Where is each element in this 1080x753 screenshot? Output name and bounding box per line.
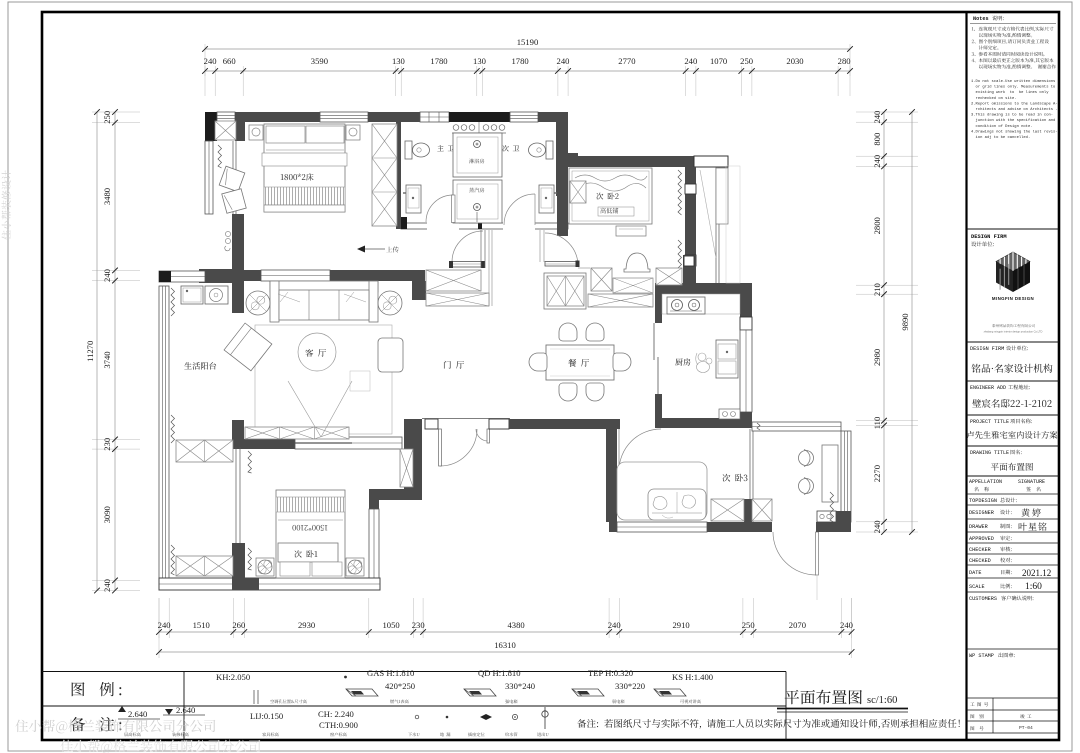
svg-text:TEP H:0.320: TEP H:0.320	[588, 668, 633, 678]
svg-text:sc/1:60: sc/1:60	[867, 695, 897, 706]
svg-text:1:60: 1:60	[1025, 582, 1042, 592]
svg-text:PROJECT TITLE: PROJECT TITLE	[970, 419, 1009, 425]
svg-text:or grid lines only. Measuremen: or grid lines only. Measurements to	[971, 85, 1056, 90]
svg-text:APPROVED: APPROVED	[969, 536, 994, 542]
svg-text:DATE: DATE	[969, 570, 981, 576]
svg-text:SIGNATURE: SIGNATURE	[1018, 479, 1045, 485]
svg-text:rechecked on site.: rechecked on site.	[971, 96, 1017, 101]
svg-text:240: 240	[872, 111, 882, 124]
svg-text:KS H:1.400: KS H:1.400	[672, 672, 713, 682]
svg-text:2030: 2030	[786, 56, 803, 66]
svg-text:230: 230	[102, 438, 112, 451]
svg-text:210: 210	[872, 283, 882, 296]
svg-text:110: 110	[872, 417, 882, 430]
svg-text:11270: 11270	[85, 341, 95, 362]
svg-text:junction with the specificatio: junction with the specification and	[971, 118, 1055, 123]
svg-text:PT-04: PT-04	[1019, 725, 1033, 731]
svg-text:800: 800	[872, 133, 882, 146]
svg-text:420*250: 420*250	[385, 681, 415, 691]
svg-text:250: 250	[742, 620, 755, 630]
svg-text:zhejiang mingpin interior desi: zhejiang mingpin interior design product…	[984, 330, 1043, 334]
svg-text:230: 230	[412, 620, 425, 630]
svg-text:240: 240	[557, 56, 570, 66]
svg-text:1.Do not scale.Use written dim: 1.Do not scale.Use written dimensions	[971, 79, 1055, 84]
svg-text:2021.12: 2021.12	[1022, 568, 1051, 578]
svg-text:250: 250	[740, 56, 753, 66]
svg-text:GAS H:1.810: GAS H:1.810	[367, 668, 414, 678]
svg-text:9890: 9890	[900, 313, 910, 330]
svg-text:240: 240	[608, 620, 621, 630]
svg-text:condition of Design note.: condition of Design note.	[971, 124, 1033, 129]
svg-text:DESIGN FIRM: DESIGN FIRM	[971, 234, 1007, 240]
svg-text:240: 240	[102, 269, 112, 282]
svg-text:CTH:0.900: CTH:0.900	[319, 720, 358, 730]
svg-text:QD H:1.810: QD H:1.810	[478, 668, 521, 678]
svg-text:1070: 1070	[710, 56, 727, 66]
svg-text:CUSTOMERS: CUSTOMERS	[969, 596, 997, 602]
svg-text:240: 240	[872, 155, 882, 168]
svg-text:CHECKED: CHECKED	[969, 558, 991, 564]
svg-text:ENGINEER ADD: ENGINEER ADD	[970, 385, 1006, 391]
svg-text:2800: 2800	[872, 217, 882, 234]
svg-text:240: 240	[158, 620, 171, 630]
svg-text:15190: 15190	[517, 37, 538, 47]
svg-text:3090: 3090	[102, 506, 112, 523]
svg-text:2070: 2070	[789, 620, 806, 630]
svg-text:3590: 3590	[311, 56, 328, 66]
svg-text:260: 260	[232, 620, 245, 630]
svg-text:16310: 16310	[494, 640, 515, 650]
svg-text:130: 130	[473, 56, 486, 66]
svg-text:2.640: 2.640	[176, 705, 195, 715]
svg-text:TOPDESIGN: TOPDESIGN	[969, 498, 997, 504]
svg-text:APPELLATION: APPELLATION	[969, 479, 1002, 485]
svg-text:240: 240	[102, 579, 112, 592]
svg-text:330*240: 330*240	[505, 681, 535, 691]
svg-text:LIJ:0.150: LIJ:0.150	[250, 711, 283, 721]
svg-text:1780: 1780	[512, 56, 529, 66]
svg-text:4380: 4380	[508, 620, 525, 630]
svg-text:660: 660	[223, 56, 236, 66]
svg-text:1780: 1780	[430, 56, 447, 66]
svg-text:ion adj to be cancelled.: ion adj to be cancelled.	[971, 135, 1030, 140]
svg-text:DESIGN FIRM: DESIGN FIRM	[970, 346, 1004, 352]
svg-text:DESIGNER: DESIGNER	[969, 510, 994, 516]
svg-text:2270: 2270	[872, 465, 882, 482]
svg-text:280: 280	[838, 56, 851, 66]
svg-text:rchitects and advise on Archit: rchitects and advise on Architects .	[971, 107, 1058, 112]
svg-text:MINGFIN DESIGN: MINGFIN DESIGN	[992, 296, 1034, 301]
svg-text:1510: 1510	[193, 620, 210, 630]
svg-text:250: 250	[102, 111, 112, 124]
svg-text:3740: 3740	[102, 351, 112, 368]
svg-text:WP STAMP: WP STAMP	[969, 653, 994, 659]
svg-text:2930: 2930	[298, 620, 315, 630]
svg-text:240: 240	[684, 56, 697, 66]
svg-text:DRAWER: DRAWER	[969, 524, 988, 530]
svg-text:2770: 2770	[618, 56, 635, 66]
svg-text:3.This drawing is to be read i: 3.This drawing is to be read in con-	[971, 113, 1053, 118]
svg-text:Notes: Notes	[973, 16, 989, 22]
svg-text:KH:2.050: KH:2.050	[216, 672, 250, 682]
svg-text:240: 240	[872, 520, 882, 533]
svg-text:SCALE: SCALE	[969, 584, 985, 590]
svg-text:240: 240	[204, 56, 217, 66]
svg-text:130: 130	[392, 56, 405, 66]
svg-text:240: 240	[840, 620, 853, 630]
svg-text:4.Drawings not showing the las: 4.Drawings not showing the last revis-	[971, 129, 1058, 134]
svg-text:2980: 2980	[872, 349, 882, 366]
svg-text:DRAWING TITLE: DRAWING TITLE	[970, 450, 1009, 456]
svg-text:2.640: 2.640	[128, 709, 147, 719]
svg-text:2.Report omissions to the Land: 2.Report omissions to the Landscape A-	[971, 101, 1058, 106]
svg-text:existing work to be lines on: existing work to be lines only	[971, 90, 1049, 95]
svg-text:CHECKER: CHECKER	[969, 547, 991, 553]
svg-text:2910: 2910	[673, 620, 690, 630]
svg-text:1050: 1050	[383, 620, 400, 630]
svg-text:330*220: 330*220	[615, 681, 645, 691]
svg-text:CH: 2.240: CH: 2.240	[318, 709, 354, 719]
svg-text:3480: 3480	[102, 188, 112, 205]
